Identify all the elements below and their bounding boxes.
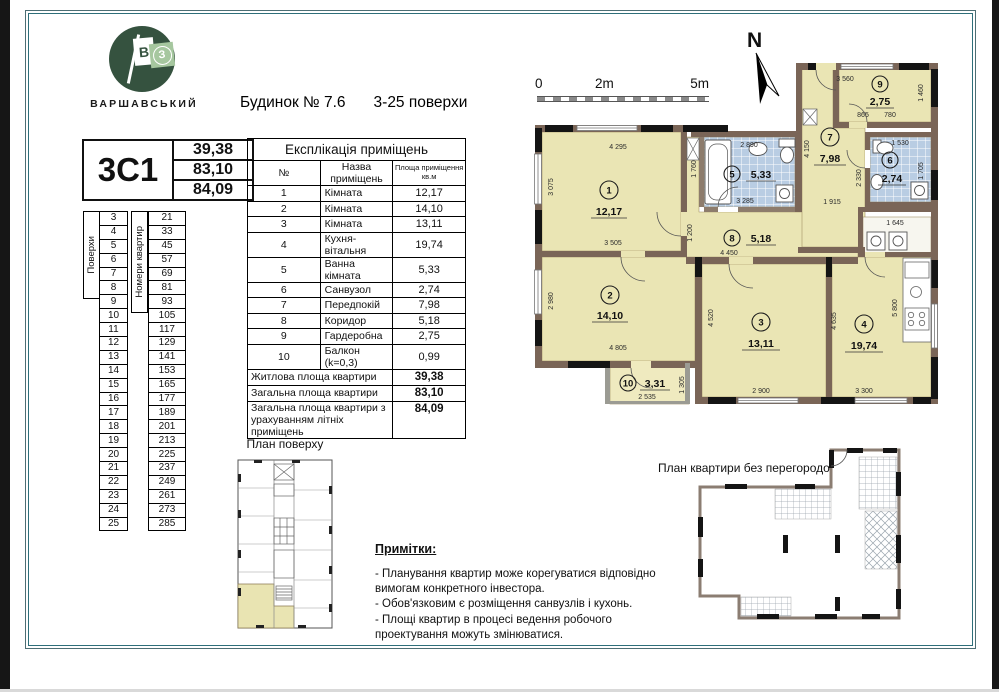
dimension-label: 2 980 (548, 292, 555, 310)
explication-row: 2 Кімната 14,10 (248, 201, 466, 217)
dimension-label: 3 560 (836, 76, 854, 83)
svg-text:5,33: 5,33 (751, 169, 772, 181)
apartment-cell: 189 (149, 406, 186, 420)
floor-cell: 9 (100, 295, 128, 309)
floor-row: 24 (100, 503, 128, 517)
svg-text:5: 5 (729, 170, 735, 181)
apartment-row: 237 (149, 462, 186, 476)
dimension-label: 865 (857, 112, 869, 119)
svg-text:14,10: 14,10 (597, 310, 623, 322)
floor-cell: 8 (100, 281, 128, 295)
floor-row: 12 (100, 337, 128, 351)
svg-text:5,18: 5,18 (751, 233, 772, 245)
floor-cell: 11 (100, 323, 128, 337)
dimension-label: 1 760 (691, 160, 698, 178)
apartment-cell: 153 (149, 364, 186, 378)
room-name-cell: Гардеробна (320, 329, 393, 345)
blueprint-sheet: В З ВАРШАВСЬКИЙ Будинок № 7.63-25 поверх… (0, 0, 999, 692)
floor-row: 16 (100, 392, 128, 406)
dimension-label: 1 200 (687, 224, 694, 242)
summary-value: 39,38 (393, 369, 466, 385)
apartment-row: 129 (149, 337, 186, 351)
apartment-cell: 129 (149, 337, 186, 351)
apartment-cell: 117 (149, 323, 186, 337)
apartment-row: 177 (149, 392, 186, 406)
floor-cell: 20 (100, 448, 128, 462)
floor-cell: 22 (100, 475, 128, 489)
room-area-cell: 0,99 (393, 344, 466, 369)
floor-cell: 5 (100, 239, 128, 253)
svg-text:2,75: 2,75 (870, 96, 891, 108)
floor-row: 11 (100, 323, 128, 337)
right-black-edge (992, 0, 999, 692)
apartment-row: 69 (149, 267, 186, 281)
room-area-cell: 13,11 (393, 217, 466, 233)
dimension-label: 1 645 (886, 220, 904, 227)
floor-row: 10 (100, 309, 128, 323)
apartment-cell: 237 (149, 462, 186, 476)
room-area-cell: 5,18 (393, 313, 466, 329)
room-number-cell: 7 (248, 298, 321, 314)
floor-row: 19 (100, 434, 128, 448)
summary-value: 84,09 (393, 401, 466, 438)
room-name-cell: Кімната (320, 201, 393, 217)
building-title: Будинок № 7.6 (240, 94, 346, 111)
room-area-cell: 5,33 (393, 257, 466, 282)
room-area-cell: 7,98 (393, 298, 466, 314)
apartment-row: 213 (149, 434, 186, 448)
note-item: - Площі квартир в процесі ведення робочо… (375, 613, 665, 643)
svg-text:1: 1 (606, 186, 612, 197)
floors-column: 345678910111213141516171819202122232425 (99, 211, 128, 531)
summary-value: 83,10 (393, 385, 466, 401)
apartment-cell: 69 (149, 267, 186, 281)
notes: Примітки: - Планування квартир може коре… (375, 542, 665, 643)
apartment-cell: 81 (149, 281, 186, 295)
svg-text:3,31: 3,31 (645, 378, 666, 390)
dimension-label: 5 800 (892, 299, 899, 317)
room-name-cell: Передпокій (320, 298, 393, 314)
apartment-cell: 177 (149, 392, 186, 406)
room-name-cell: Санвузол (320, 282, 393, 298)
floor-cell: 18 (100, 420, 128, 434)
floor-cell: 10 (100, 309, 128, 323)
apartment-row: 45 (149, 239, 186, 253)
apartments-axis-label: Номери квартир (131, 211, 148, 313)
apartment-cell: 21 (149, 212, 186, 226)
svg-text:2: 2 (607, 291, 612, 302)
floor-cell: 17 (100, 406, 128, 420)
no-partition-plan (697, 447, 905, 627)
floors-range: 3-25 поверхи (374, 94, 468, 111)
dimension-label: 1 530 (891, 140, 909, 147)
room-name-cell: Кухня-вітальня (320, 232, 393, 257)
apartment-row: 249 (149, 475, 186, 489)
room-area-cell: 19,74 (393, 232, 466, 257)
floor-row: 6 (100, 253, 128, 267)
floor-cell: 19 (100, 434, 128, 448)
apartment-floor-plan: 4 295 3 075 3 505 1 760 2 890 3 285 1 20… (533, 52, 957, 430)
dimension-label: 1 915 (823, 199, 841, 206)
summary-label: Загальна площа квартири з урахуванням лі… (248, 401, 393, 438)
apartment-row: 189 (149, 406, 186, 420)
floor-cell: 4 (100, 225, 128, 239)
dimension-label: 3 505 (604, 240, 622, 247)
dimension-label: 2 535 (638, 394, 656, 401)
floor-row: 8 (100, 281, 128, 295)
apartment-row: 153 (149, 364, 186, 378)
floor-plan-mini-title: План поверху (236, 437, 334, 451)
room-area-cell: 14,10 (393, 201, 466, 217)
dimension-label: 780 (884, 112, 896, 119)
apartment-row: 105 (149, 309, 186, 323)
apartment-cell: 261 (149, 489, 186, 503)
floor-cell: 14 (100, 364, 128, 378)
explication-row: 7 Передпокій 7,98 (248, 298, 466, 314)
apartment-cell: 213 (149, 434, 186, 448)
svg-text:7,98: 7,98 (820, 153, 841, 165)
floors-axis-label: Поверхи (83, 211, 100, 299)
dimension-label: 4 635 (831, 312, 838, 330)
note-item: - Планування квартир може корегуватися в… (375, 567, 665, 597)
room-area-cell: 2,74 (393, 282, 466, 298)
dimension-label: 1 460 (918, 84, 925, 102)
floor-row: 9 (100, 295, 128, 309)
floor-row: 5 (100, 239, 128, 253)
apartment-cell: 33 (149, 225, 186, 239)
dimension-label: 3 300 (855, 388, 873, 395)
explication-table: Експлікація приміщень № Назва приміщень … (247, 138, 466, 439)
logo-z-letter: З (152, 45, 173, 66)
floor-cell: 6 (100, 253, 128, 267)
apartment-cell: 201 (149, 420, 186, 434)
explication-row: 8 Коридор 5,18 (248, 313, 466, 329)
explication-row: 3 Кімната 13,11 (248, 217, 466, 233)
dimension-label: 1 705 (918, 162, 925, 180)
notes-title: Примітки: (375, 542, 665, 556)
apartment-row: 57 (149, 253, 186, 267)
apartment-cell: 45 (149, 239, 186, 253)
dimension-label: 1 305 (679, 376, 686, 394)
explication-title: Експлікація приміщень (248, 139, 466, 161)
total-area-summer-value: 84,09 (173, 180, 253, 200)
svg-text:8: 8 (729, 234, 734, 245)
note-item: - Обов'язковим є розміщення санвузлів і … (375, 597, 665, 612)
room-name-cell: Кімната (320, 186, 393, 202)
svg-text:7: 7 (827, 133, 832, 144)
apartment-cell: 273 (149, 503, 186, 517)
floor-cell: 7 (100, 267, 128, 281)
apartment-cell: 105 (149, 309, 186, 323)
apartment-row: 93 (149, 295, 186, 309)
floor-cell: 24 (100, 503, 128, 517)
brand-name: ВАРШАВСЬКИЙ (84, 98, 204, 110)
kitchen-fixtures (903, 258, 931, 342)
summary-row: Загальна площа квартири з урахуванням лі… (248, 401, 466, 438)
svg-text:12,17: 12,17 (596, 206, 622, 218)
room-number-cell: 2 (248, 201, 321, 217)
explication-row: 6 Санвузол 2,74 (248, 282, 466, 298)
svg-text:6: 6 (887, 156, 892, 167)
floor-row: 17 (100, 406, 128, 420)
apartment-row: 273 (149, 503, 186, 517)
explication-row: 9 Гардеробна 2,75 (248, 329, 466, 345)
room-number-cell: 8 (248, 313, 321, 329)
floor-cell: 15 (100, 378, 128, 392)
floor-row: 25 (100, 517, 128, 531)
floor-row: 7 (100, 267, 128, 281)
floor-row: 3 (100, 212, 128, 226)
svg-text:10: 10 (623, 379, 634, 390)
logo-square-icon: З (149, 42, 175, 68)
summary-row: Житлова площа квартири 39,38 (248, 369, 466, 385)
apartment-row: 117 (149, 323, 186, 337)
dimension-label: 4 805 (609, 345, 627, 352)
floor-cell: 16 (100, 392, 128, 406)
north-label: N (747, 29, 762, 52)
apartment-cell: 57 (149, 253, 186, 267)
apartment-row: 201 (149, 420, 186, 434)
svg-text:4: 4 (861, 320, 867, 331)
room-name-cell: Коридор (320, 313, 393, 329)
room-number-cell: 5 (248, 257, 321, 282)
apartment-code-card: 3С1 39,38 83,10 84,09 (82, 139, 254, 201)
dimension-label: 4 295 (609, 144, 627, 151)
floor-row: 14 (100, 364, 128, 378)
room-name-cell: Балкон (k=0,3) (320, 344, 393, 369)
svg-text:9: 9 (877, 80, 882, 91)
apartment-row: 21 (149, 212, 186, 226)
living-area-value: 39,38 (173, 140, 253, 160)
svg-text:2,74: 2,74 (882, 173, 903, 185)
room-name-cell: Ванна кімната (320, 257, 393, 282)
floor-row: 4 (100, 225, 128, 239)
floor-cell: 13 (100, 350, 128, 364)
apartment-row: 33 (149, 225, 186, 239)
explication-row: 1 Кімната 12,17 (248, 186, 466, 202)
room-number-cell: 10 (248, 344, 321, 369)
total-area-value: 83,10 (173, 160, 253, 180)
room-number-cell: 1 (248, 186, 321, 202)
room-number-cell: 9 (248, 329, 321, 345)
room-number-cell: 4 (248, 232, 321, 257)
summary-row: Загальна площа квартири 83,10 (248, 385, 466, 401)
explication-row: 4 Кухня-вітальня 19,74 (248, 232, 466, 257)
room-name-cell: Кімната (320, 217, 393, 233)
svg-text:3: 3 (758, 318, 763, 329)
sheet-title: Будинок № 7.63-25 поверхи (240, 94, 467, 112)
col-header-area: Площа приміщення кв.м (393, 161, 466, 186)
explication-row: 10 Балкон (k=0,3) 0,99 (248, 344, 466, 369)
apartment-cell: 165 (149, 378, 186, 392)
floor-row: 15 (100, 378, 128, 392)
floor-row: 23 (100, 489, 128, 503)
dimension-label: 3 285 (736, 198, 754, 205)
apartment-row: 165 (149, 378, 186, 392)
left-black-edge (0, 0, 10, 692)
brand-logo: В З (109, 26, 175, 92)
floor-row: 21 (100, 462, 128, 476)
dimension-label: 4 520 (708, 309, 715, 327)
svg-text:19,74: 19,74 (851, 340, 877, 352)
apartment-cell: 141 (149, 350, 186, 364)
room-area-cell: 2,75 (393, 329, 466, 345)
room-number-cell: 6 (248, 282, 321, 298)
explication-row: 5 Ванна кімната 5,33 (248, 257, 466, 282)
floor-row: 13 (100, 350, 128, 364)
apartment-code: 3С1 (83, 140, 173, 200)
apartment-row: 285 (149, 517, 186, 531)
dimension-label: 2 330 (856, 169, 863, 187)
apartment-row: 225 (149, 448, 186, 462)
floor-cell: 12 (100, 337, 128, 351)
col-header-name: Назва приміщень (320, 161, 393, 186)
apartment-row: 141 (149, 350, 186, 364)
dimension-label: 3 075 (548, 178, 555, 196)
col-header-num: № (248, 161, 321, 186)
dimension-label: 2 890 (740, 142, 758, 149)
apartment-row: 81 (149, 281, 186, 295)
apartment-cell: 93 (149, 295, 186, 309)
apartment-cell: 225 (149, 448, 186, 462)
apartment-numbers-column: 2133455769819310511712914115316517718920… (148, 211, 186, 531)
apartment-cell: 285 (149, 517, 186, 531)
dimension-label: 4 450 (720, 250, 738, 257)
svg-text:13,11: 13,11 (748, 338, 774, 350)
apartment-cell: 249 (149, 475, 186, 489)
floor-cell: 25 (100, 517, 128, 531)
apartment-row: 261 (149, 489, 186, 503)
room-area-cell: 12,17 (393, 186, 466, 202)
room-number-cell: 3 (248, 217, 321, 233)
summary-label: Житлова площа квартири (248, 369, 393, 385)
dimension-label: 2 900 (752, 388, 770, 395)
dimension-label: 4 150 (804, 140, 811, 158)
floor-row: 20 (100, 448, 128, 462)
summary-label: Загальна площа квартири (248, 385, 393, 401)
floor-cell: 21 (100, 462, 128, 476)
floor-row: 18 (100, 420, 128, 434)
floor-row: 22 (100, 475, 128, 489)
floor-cell: 23 (100, 489, 128, 503)
floor-cell: 3 (100, 212, 128, 226)
floor-plan-mini (236, 458, 334, 632)
